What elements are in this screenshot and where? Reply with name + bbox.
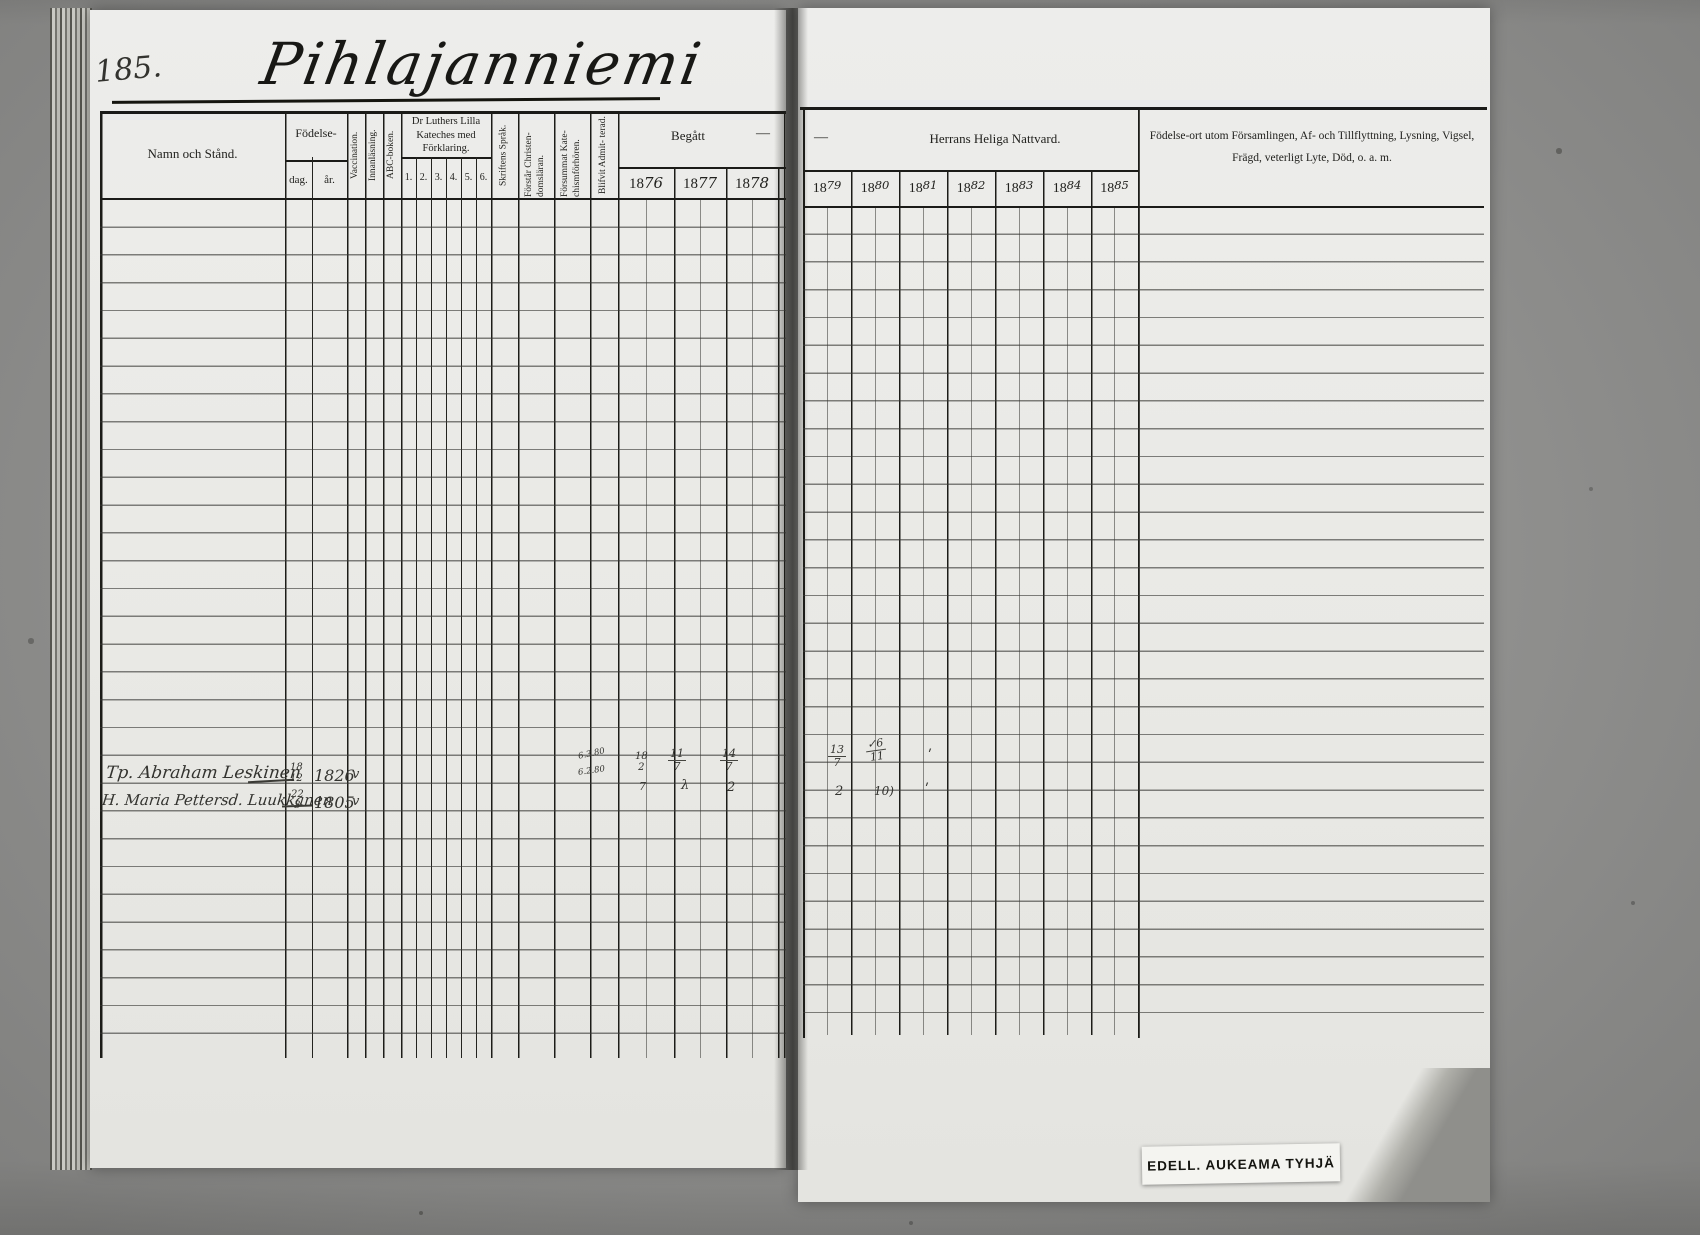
mark-1877-den: 7 <box>674 761 681 772</box>
col-header-understands-christianity: Förstår Christen- domsläran. <box>518 113 554 197</box>
entry-2-birth-day-den: 3 <box>294 801 300 811</box>
mark-1879-den: 7 <box>834 757 841 768</box>
col-header-abc-book: ABC-boken. <box>383 113 401 197</box>
catechism-subcol-2: 2. <box>416 172 431 183</box>
col-header-admitted: Blifvit Admit- terad. <box>590 113 618 197</box>
mark-1878-symbol: 2 <box>727 780 735 795</box>
year-header-1885: 1885 <box>1091 181 1138 197</box>
year-1882-suffix: 82 <box>971 178 986 192</box>
year-1885-suffix: 85 <box>1114 178 1129 192</box>
catechism-subcol-4: 4. <box>446 172 461 183</box>
year-1876-suffix: 76 <box>644 174 663 192</box>
year-header-1879: 1879 <box>803 181 851 197</box>
year-1881-suffix: 81 <box>923 178 938 192</box>
year-1876-prefix: 18 <box>629 176 644 192</box>
year-1878-suffix: 78 <box>750 174 769 192</box>
book-spine-page-edges <box>50 8 92 1170</box>
mark-1876-symbol: 7 <box>639 780 646 793</box>
begatt-dash: — <box>756 126 770 142</box>
entry-2-birth-year: 1805 <box>314 793 355 812</box>
year-1883-suffix: 83 <box>1019 178 1034 192</box>
year-1880-suffix: 80 <box>875 178 890 192</box>
year-1883-prefix: 18 <box>1005 181 1019 196</box>
mark-1881-tick-top: ʹ <box>928 748 932 764</box>
year-header-1883: 1883 <box>995 181 1043 197</box>
year-1881-prefix: 18 <box>909 181 923 196</box>
archive-stamp: EDELL. AUKEAMA TYHJÄ <box>1142 1143 1341 1184</box>
col-header-begatt: Begått <box>618 128 758 144</box>
year-1880-prefix: 18 <box>861 181 875 196</box>
year-header-1877: 1877 <box>674 174 726 193</box>
mark-1881-tick-bottom: ʹ <box>925 782 929 798</box>
col-header-missed-exams: Försummat Kate- chismförhören. <box>554 113 590 197</box>
mark-1878-date: 14 7 <box>720 748 738 772</box>
mark-1878-den: 7 <box>726 761 733 772</box>
mark-1880-date: ✓6 11 <box>864 737 887 764</box>
entry-1-birth-year: 1826 <box>314 766 355 785</box>
col-header-vaccination: Vaccination. <box>347 113 365 197</box>
mark-1880-symbol: 10) <box>874 784 894 798</box>
year-1877-suffix: 77 <box>698 174 717 192</box>
entry-1-vaccination-mark: v <box>352 767 359 782</box>
catechism-subcol-5: 5. <box>461 172 476 183</box>
year-1884-prefix: 18 <box>1053 181 1067 196</box>
year-header-1878: 1878 <box>726 174 778 193</box>
catechism-subcol-6: 6. <box>476 172 491 183</box>
col-header-birth-day: dag. <box>285 174 312 186</box>
mark-1876-den: 2 <box>638 763 644 773</box>
col-header-notes-line2: Frägd, veterligt Lyte, Död, o. a. m. <box>1145 152 1479 164</box>
col-header-reading: Innanläsning. <box>365 113 383 197</box>
page-corner-curl <box>1332 1068 1490 1202</box>
entry-2-vaccination-mark: v <box>352 794 359 809</box>
scan-noise-speckles <box>0 0 2 2</box>
col-header-birth-group: Födelse- <box>285 126 347 141</box>
catechism-subcol-3: 3. <box>431 172 446 183</box>
year-header-1880: 1880 <box>851 181 899 197</box>
col-header-notes-line1: Födelse-ort utom Församlingen, Af- och T… <box>1145 130 1479 142</box>
mark-1877-symbol: λ <box>681 778 689 793</box>
year-1885-prefix: 18 <box>1100 181 1114 196</box>
mark-1879-symbol: 2 <box>835 784 843 799</box>
entry-1-birth-day: 18 12 <box>288 763 305 784</box>
mark-1877-date: 11 7 <box>668 748 686 772</box>
year-header-1881: 1881 <box>899 181 947 197</box>
year-1879-prefix: 18 <box>813 181 827 196</box>
communion-dash: — <box>814 130 828 146</box>
year-header-1884: 1884 <box>1043 181 1091 197</box>
page-number: 185. <box>94 49 164 90</box>
year-1877-prefix: 18 <box>683 176 698 192</box>
village-title: Pihlajanniemi <box>256 30 709 98</box>
year-1882-prefix: 18 <box>957 181 971 196</box>
mark-1880-den: 11 <box>869 750 884 763</box>
archive-stamp-label: EDELL. AUKEAMA TYHJÄ <box>1147 1155 1335 1173</box>
col-header-communion: Herrans Heliga Nattvard. <box>850 131 1140 147</box>
col-header-catechism: Dr Luthers Lilla Kateches med Förklaring… <box>401 115 491 156</box>
entry-2-birth-day: 22 3 <box>289 790 306 811</box>
scanned-church-book-spread: 185. Pihlajanniemi Namn och Stånd. Födel… <box>0 0 1700 1235</box>
right-ruled-rows <box>803 207 1484 1037</box>
mark-1876-date: 18 2 <box>633 752 650 773</box>
catechism-subcol-1: 1. <box>401 172 416 183</box>
year-1878-prefix: 18 <box>735 176 750 192</box>
col-header-name: Namn och Stånd. <box>100 146 285 162</box>
year-1879-suffix: 79 <box>827 178 842 192</box>
entry-1-birth-day-den: 12 <box>290 774 303 784</box>
col-header-birth-year: år. <box>312 174 347 186</box>
left-ruled-rows <box>100 200 786 1060</box>
col-header-script-language: Skriftens Språk. <box>491 113 518 197</box>
mark-1879-date: 13 7 <box>828 744 846 768</box>
year-header-1882: 1882 <box>947 181 995 197</box>
year-1884-suffix: 84 <box>1067 178 1082 192</box>
year-header-1876: 1876 <box>618 174 674 193</box>
